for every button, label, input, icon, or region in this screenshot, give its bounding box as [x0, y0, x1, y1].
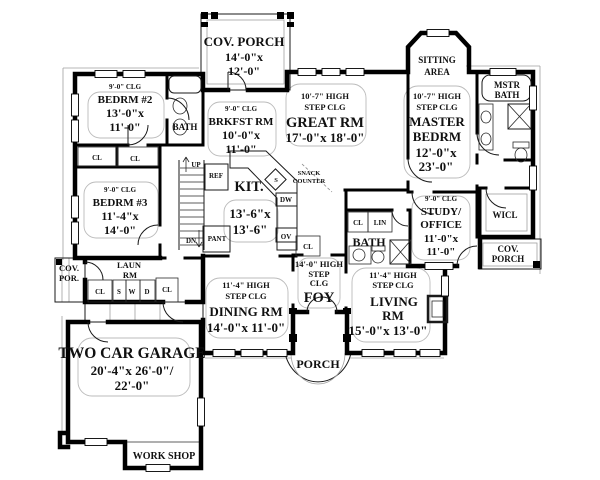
- label-brkfst-clg: 9'-0" CLG: [225, 105, 258, 113]
- window: [322, 69, 340, 76]
- window: [530, 166, 537, 190]
- label-dining-clg2: STEP CLG: [225, 291, 267, 301]
- label-kit-dim2: 13'-6": [233, 222, 268, 237]
- label-dining: DINING RM: [209, 304, 282, 319]
- label-study-dim2: 11'-0": [427, 246, 456, 258]
- label-cl-laundry-b: CL: [162, 286, 172, 294]
- label-ov: OV: [281, 233, 292, 241]
- window: [123, 71, 145, 78]
- label-bath-center: BATH: [352, 235, 386, 249]
- label-dryer: D: [144, 288, 149, 296]
- label-living2: RM: [382, 308, 404, 323]
- window: [72, 222, 79, 244]
- window: [490, 69, 516, 76]
- label-brkfst: BRKFST RM: [209, 116, 275, 128]
- label-sitting1: SITTING: [418, 55, 456, 65]
- label-snack2: COUNTER: [293, 178, 326, 185]
- label-cl-bedrm2-a: CL: [92, 154, 102, 162]
- window: [72, 120, 79, 142]
- label-brkfst-dim1: 10'-0"x: [222, 128, 260, 142]
- label-study1: STUDY/: [421, 206, 462, 218]
- label-garage-dim1: 20'-4"x 26'-0"/: [91, 363, 174, 378]
- label-master-dim2: 23'-0": [419, 159, 454, 174]
- label-master1: MASTER: [409, 114, 465, 129]
- label-bedrm2: BEDRM #2: [98, 94, 153, 106]
- label-workshop: WORK SHOP: [133, 451, 196, 462]
- label-great-dims: 17'-0"x 18'-0": [285, 130, 364, 145]
- stair-arrows: [183, 157, 202, 247]
- label-pant: PANT: [208, 235, 227, 243]
- window: [146, 465, 170, 472]
- label-master2: BEDRM: [413, 129, 461, 144]
- label-bedrm2-clg: 9'-0" CLG: [109, 83, 142, 91]
- label-lin-hall: LIN: [374, 219, 386, 227]
- window: [346, 69, 364, 76]
- label-living-clg1: 11'-4" HIGH: [369, 270, 417, 280]
- window: [213, 350, 235, 357]
- label-bedrm3-dim1: 11'-4"x: [101, 209, 138, 223]
- label-kit: KIT.: [234, 179, 263, 195]
- label-study-clg: 9'-0" CLG: [425, 195, 458, 203]
- label-cl-bedrm2-b: CL: [130, 155, 140, 163]
- label-mstr-bath1: MSTR: [494, 80, 521, 90]
- floor-plan-sheet: COV. PORCH 14'-0"x 12'-0" 9'-0" CLG BEDR…: [0, 0, 600, 480]
- label-laun2: RM: [123, 270, 137, 280]
- window: [241, 350, 263, 357]
- label-cov-porch-top-dim2: 12'-0": [228, 64, 260, 78]
- label-brkfst-dim2: 11'-0": [225, 142, 256, 156]
- label-mstr-bath2: BATH: [495, 90, 520, 100]
- floor-plan: COV. PORCH 14'-0"x 12'-0" 9'-0" CLG BEDR…: [0, 0, 600, 480]
- label-sitting2: AREA: [424, 67, 450, 77]
- window: [298, 69, 316, 76]
- window: [95, 71, 117, 78]
- window: [72, 94, 79, 116]
- label-kitchen-sink: S: [274, 177, 278, 184]
- label-snack1: SNACK: [298, 170, 321, 177]
- toilet: [173, 98, 187, 114]
- window: [198, 398, 205, 426]
- hall-bath-toilet: [372, 251, 384, 263]
- window: [442, 276, 449, 296]
- tub: [169, 76, 201, 93]
- window: [362, 350, 384, 357]
- label-cov-porch-top: COV. PORCH: [204, 34, 285, 49]
- label-foy-clg3: CLG: [310, 278, 329, 288]
- label-cov-porch-right2: PORCH: [492, 254, 525, 264]
- label-laun1: LAUN: [117, 260, 142, 270]
- label-dining-dims: 14'-0"x 11'-0": [207, 320, 285, 335]
- window: [394, 350, 416, 357]
- label-cov-porch-right1: COV.: [497, 244, 518, 254]
- label-dn: DN: [186, 237, 196, 245]
- label-bedrm3-clg: 9'-0" CLG: [104, 186, 137, 194]
- shower-x: [508, 104, 531, 129]
- window: [72, 196, 79, 218]
- label-dw: DW: [280, 196, 292, 204]
- label-master-dim1: 12'-0"x: [415, 145, 457, 160]
- window: [425, 263, 453, 270]
- label-bedrm2-dim1: 13'-0"x: [106, 106, 144, 120]
- window: [267, 350, 287, 357]
- window: [420, 350, 440, 357]
- label-washer: W: [129, 288, 136, 296]
- label-great-clg1: 10'-7" HIGH: [301, 91, 349, 101]
- label-bath-upper: BATH: [173, 122, 198, 132]
- label-study-dim1: 11'-0"x: [424, 233, 459, 245]
- room-labels: COV. PORCH 14'-0"x 12'-0" 9'-0" CLG BEDR…: [58, 34, 524, 462]
- label-study2: OFFICE: [420, 219, 462, 231]
- steps-strip: [85, 302, 203, 322]
- label-cov-por-left1: COV.: [59, 263, 79, 273]
- label-great-clg2: STEP CLG: [304, 102, 346, 112]
- label-master-clg2: STEP CLG: [416, 102, 458, 112]
- label-porch: PORCH: [296, 357, 340, 371]
- label-garage-dim2: 22'-0": [115, 378, 150, 393]
- label-cl-hall: CL: [353, 219, 363, 227]
- label-bedrm3: BEDRM #3: [93, 197, 148, 209]
- label-foy: FOY: [304, 290, 335, 306]
- label-living-clg2: STEP CLG: [372, 280, 414, 290]
- label-cl-foyer: CL: [303, 243, 313, 251]
- label-living1: LIVING: [370, 294, 418, 309]
- label-wicl: WICL: [492, 210, 517, 220]
- label-bedrm2-dim2: 11'-0": [109, 120, 140, 134]
- label-bedrm3-dim2: 14'-0": [104, 223, 136, 237]
- label-garage: TWO CAR GARAGE: [58, 345, 205, 362]
- label-up: UP: [191, 161, 201, 169]
- label-kit-dim1: 13'-6"x: [229, 206, 271, 221]
- label-great: GREAT RM: [286, 115, 364, 131]
- window: [85, 439, 107, 446]
- label-living-dims: 15'-0"x 13'-0": [348, 323, 427, 338]
- label-cov-porch-top-dim1: 14'-0"x: [225, 50, 263, 64]
- label-foy-clg1: 14'-0" HIGH: [295, 259, 343, 269]
- label-dining-clg1: 11'-4" HIGH: [222, 280, 270, 290]
- window: [427, 30, 449, 37]
- label-ref: REF: [209, 172, 223, 180]
- window: [530, 86, 537, 110]
- label-master-clg1: 10'-7" HIGH: [413, 91, 461, 101]
- label-cl-laundry-a: CL: [95, 288, 105, 296]
- label-laundry-sink: S: [117, 288, 121, 296]
- label-cov-por-left2: POR.: [59, 273, 79, 283]
